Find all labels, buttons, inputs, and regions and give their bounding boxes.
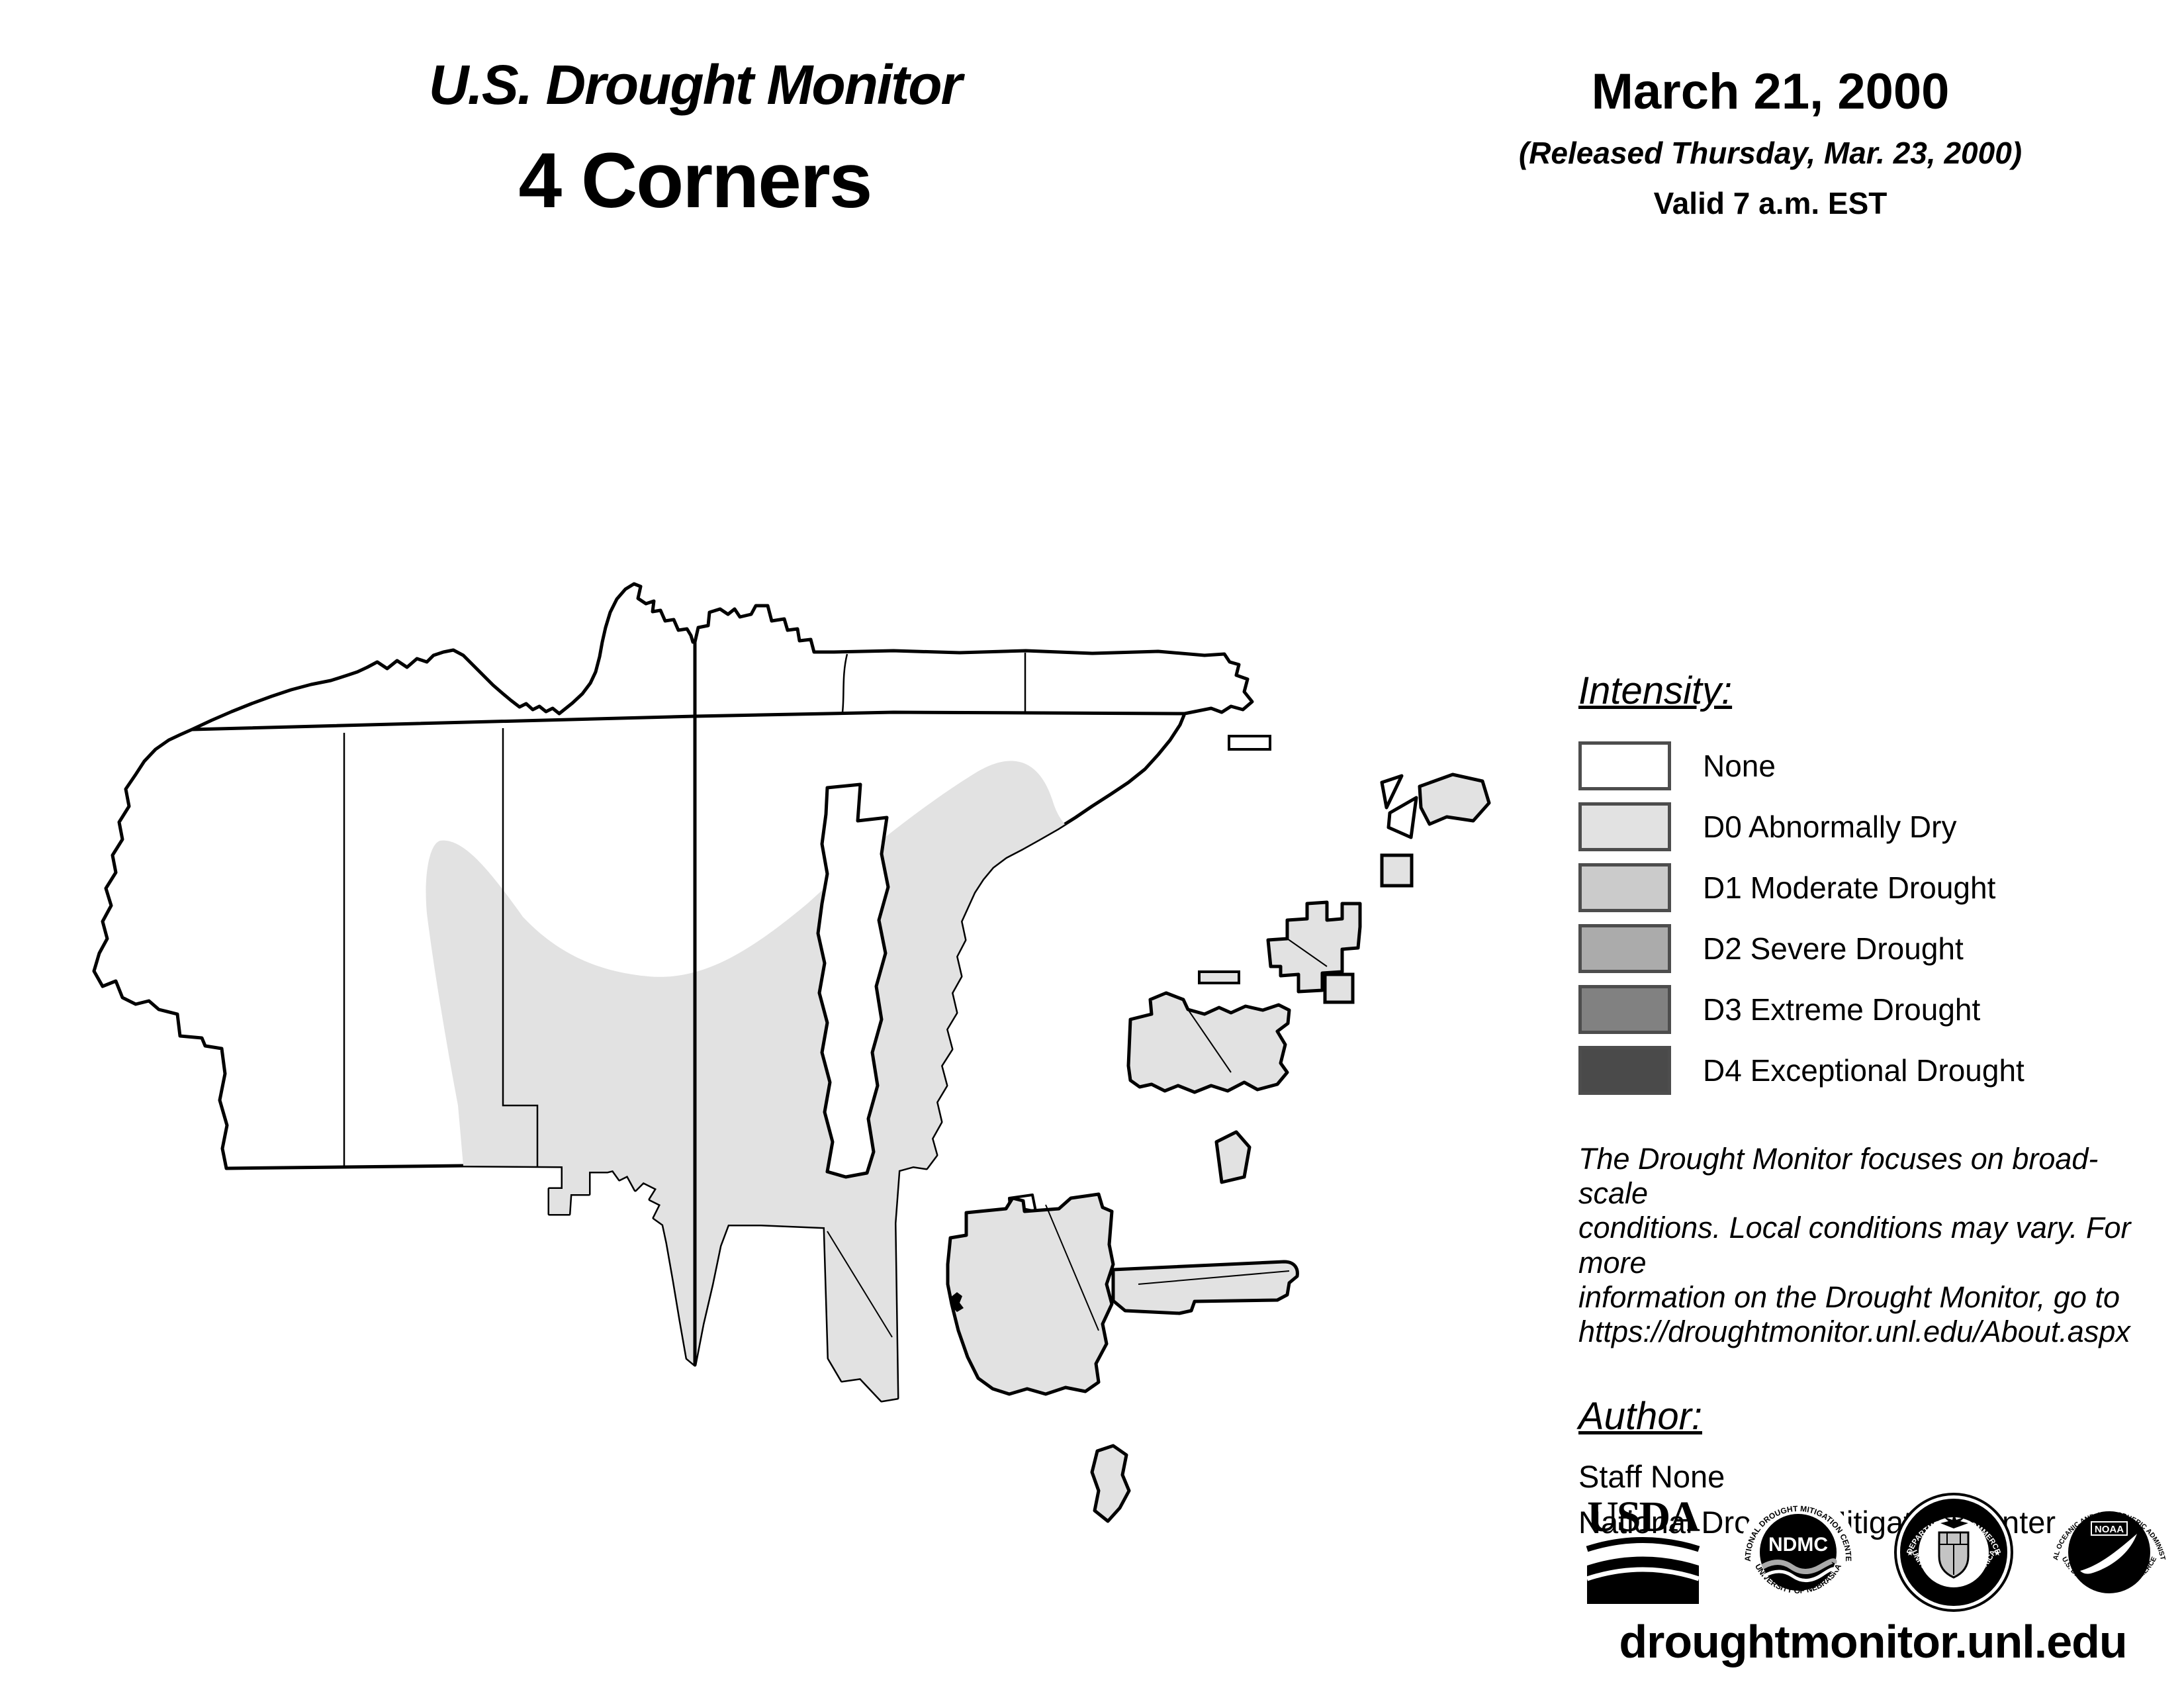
legend-swatch-none — [1578, 741, 1671, 790]
disclaimer-line-3: information on the Drought Monitor, go t… — [1578, 1280, 2120, 1314]
map-date: March 21, 2000 — [1423, 63, 2118, 120]
legend-row-d4: D4 Exceptional Drought — [1578, 1040, 2161, 1101]
legend-row-none: None — [1578, 735, 2161, 796]
legend-row-d3: D3 Extreme Drought — [1578, 979, 2161, 1040]
legend-row-d1: D1 Moderate Drought — [1578, 857, 2161, 918]
legend-label-d3: D3 Extreme Drought — [1703, 992, 1980, 1027]
noaa-logo: NATIONAL OCEANIC AND ATMOSPHERIC ADMINIS… — [2048, 1486, 2171, 1618]
legend-swatch-d1 — [1578, 863, 1671, 912]
disclaimer-text: The Drought Monitor focuses on broad-sca… — [1578, 1142, 2161, 1349]
released-date: (Released Thursday, Mar. 23, 2000) — [1423, 135, 2118, 171]
legend-swatch-d0 — [1578, 802, 1671, 851]
region-title: 4 Corners — [165, 136, 1224, 226]
legend-heading: Intensity: — [1578, 669, 2161, 713]
page-title: U.S. Drought Monitor — [165, 53, 1224, 117]
site-url: droughtmonitor.unl.edu — [1542, 1615, 2184, 1668]
map-poly-pentagon — [1216, 1132, 1250, 1182]
legend-swatch-d3 — [1578, 985, 1671, 1034]
legend-row-d0: D0 Abnormally Dry — [1578, 796, 2161, 857]
legend-swatch-d4 — [1578, 1046, 1671, 1095]
ndmc-logo-center-text: NDMC — [1768, 1534, 1828, 1556]
map-poly-south-central — [948, 1194, 1113, 1394]
drought-map — [66, 543, 1522, 1549]
legend-panel: Intensity: None D0 Abnormally Dry D1 Mod… — [1578, 669, 2161, 1540]
map-poly-quad — [1420, 774, 1489, 824]
legend-label-d4: D4 Exceptional Drought — [1703, 1053, 2025, 1088]
legend-label-none: None — [1703, 748, 1776, 784]
logo-row: USDA NATIONAL DROUGHT MITIGATION CENTER … — [1582, 1483, 2171, 1622]
date-block: March 21, 2000 (Released Thursday, Mar. … — [1423, 63, 2118, 221]
map-poly-acoma — [1128, 993, 1289, 1092]
doc-logo: DEPARTMENT OF COMMERCE UNITED STATES OF … — [1893, 1486, 2015, 1618]
map-poly-east-elongated — [1113, 1262, 1297, 1313]
legend-label-d1: D1 Moderate Drought — [1703, 870, 1995, 906]
map-poly-strip-small — [1199, 972, 1239, 983]
usda-logo-text: USDA — [1587, 1493, 1700, 1541]
legend-row-d2: D2 Severe Drought — [1578, 918, 2161, 979]
usda-logo: USDA — [1582, 1486, 1704, 1618]
legend-swatch-d2 — [1578, 924, 1671, 973]
disclaimer-line-1: The Drought Monitor focuses on broad-sca… — [1578, 1142, 2098, 1210]
map-poly-cluster-square — [1325, 974, 1353, 1002]
ndmc-logo: NATIONAL DROUGHT MITIGATION CENTER UNIVE… — [1737, 1486, 1860, 1618]
map-poly-square — [1382, 855, 1412, 886]
disclaimer-line-2: conditions. Local conditions may vary. F… — [1578, 1211, 2131, 1279]
noaa-logo-center-text: NOAA — [2095, 1524, 2124, 1535]
doc-star-right: ★ — [1994, 1548, 2001, 1558]
map-poly-bowtie — [1382, 776, 1416, 837]
map-detached-bar — [1229, 736, 1270, 749]
disclaimer-url: https://droughtmonitor.unl.edu/About.asp… — [1578, 1315, 2130, 1348]
legend-label-d0: D0 Abnormally Dry — [1703, 809, 1956, 845]
author-heading: Author: — [1578, 1394, 2161, 1438]
legend-label-d2: D2 Severe Drought — [1703, 931, 1964, 966]
title-block: U.S. Drought Monitor 4 Corners — [165, 53, 1224, 226]
doc-star-left: ★ — [1907, 1548, 1914, 1558]
map-poly-isolated-south — [1092, 1446, 1129, 1521]
drought-map-svg — [66, 543, 1522, 1549]
valid-time: Valid 7 a.m. EST — [1423, 185, 2118, 221]
